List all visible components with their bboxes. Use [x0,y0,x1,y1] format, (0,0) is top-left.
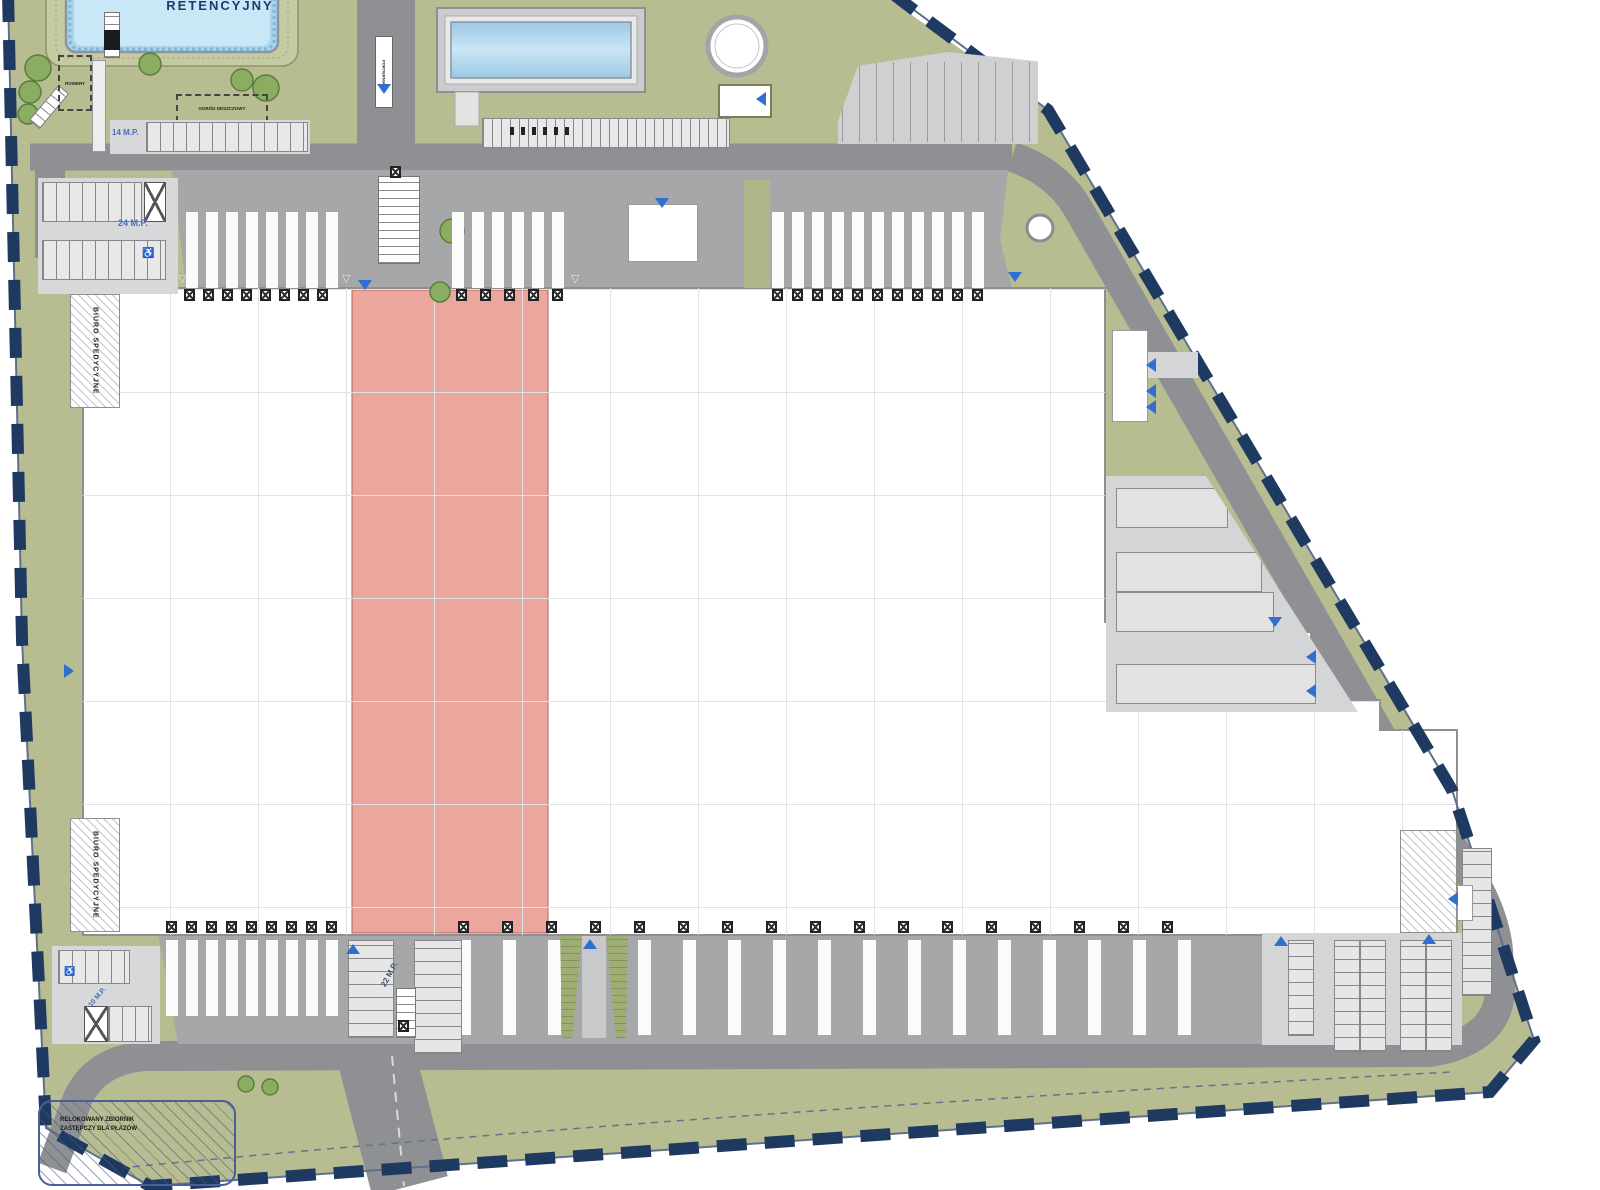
entrance-arrow-icon [655,198,669,208]
parking-column [414,940,462,1054]
dock-door-icon [546,921,557,933]
dock-marker-icon: ▽ [571,274,579,285]
swale-path [582,936,606,1038]
parking-column [1400,940,1426,1052]
reserved-stall [84,1006,108,1042]
dock-door-icon [972,289,983,301]
parking-row [1116,488,1228,528]
dock-door-icon [852,289,863,301]
dock-door-row [458,921,1206,933]
parking-row [146,122,308,152]
gatehouse: PORTIERNIA [375,36,393,108]
disabled-parking-icon: ♿ [64,966,75,977]
dock-door-icon [186,921,197,933]
canopy-structure [628,204,698,262]
entrance-arrow-icon [1306,650,1316,664]
parking-row [1116,664,1316,704]
dock-door-icon [456,289,467,301]
dock-door-icon [678,921,689,933]
dock-door-icon [932,289,943,301]
reserved-stall [144,182,166,222]
entrance-arrow-icon [64,664,74,678]
side-entry-structure [1112,330,1148,422]
dock-door-icon [398,1020,409,1032]
parking-row [42,182,142,222]
parking-row [108,1006,152,1042]
dock-door-icon [226,921,237,933]
pump-house-arrow-icon [756,92,766,106]
entrance-arrow-icon [1146,384,1156,398]
corner-office-area [1400,830,1457,933]
amphibian-label-line2: ZASTĘPCZY DLA PŁAZÓW [60,1125,234,1134]
dock-door-icon [260,289,271,301]
retention-pond-label: RETENCYJNY [150,0,290,13]
dock-door-icon [286,921,297,933]
dock-door-icon [298,289,309,301]
dock-door-icon [892,289,903,301]
dock-door-icon [184,289,195,301]
entrance-arrow-icon [358,280,372,290]
dock-door-icon [832,289,843,301]
gatehouse-label: PORTIERNIA [382,60,387,85]
dock-door-icon [203,289,214,301]
dock-door-icon [772,289,783,301]
entrance-arrow-icon [1008,272,1022,282]
rain-garden-label: OGRÓD DESZCZOWY [199,106,246,111]
forwarding-office-sw: BIURO SPEDYCYJNE [70,818,120,932]
parking-row [1116,592,1274,632]
dock-marker-icon: ▽ [342,274,350,285]
dock-stair-structure [378,176,420,264]
dock-door-icon [502,921,513,933]
dock-door-icon [317,289,328,301]
dock-door-icon [1162,921,1173,933]
dock-door-icon [634,921,645,933]
dock-door-icon [854,921,865,933]
circular-tank [708,17,766,75]
dock-door-icon [872,289,883,301]
dock-door-icon [326,921,337,933]
dock-door-icon [528,289,539,301]
dock-door-icon [898,921,909,933]
dock-door-icon [206,921,217,933]
site-plan: RETENCYJNY OGRÓD DESZCZOWY ROWERY PORTIE… [0,0,1600,1190]
disabled-parking-icon: ♿ [142,248,154,259]
parking-row [42,240,166,280]
parking-column [348,940,394,1038]
dock-door-icon [952,289,963,301]
dock-door-icon [1074,921,1085,933]
dock-door-icon [590,921,601,933]
green-verge [744,180,770,288]
dock-door-icon [241,289,252,301]
parking-row [842,62,1034,142]
dock-door-icon [390,166,401,178]
dock-door-row [456,289,576,301]
dock-door-icon [266,921,277,933]
dock-door-icon [306,921,317,933]
dock-door-icon [812,289,823,301]
dock-door-icon [222,289,233,301]
dock-door-icon [810,921,821,933]
dock-door-icon [1030,921,1041,933]
parking-row [1116,552,1262,592]
bike-shelter: ROWERY [58,55,92,111]
dock-door-row [166,921,346,933]
parking-column [1426,940,1452,1052]
entrance-arrow-icon [1146,400,1156,414]
dock-door-icon [1118,921,1129,933]
parking-14-label: 14 M.P. [112,128,139,137]
parking-column [1334,940,1360,1052]
entrance-arrow-icon [346,944,360,954]
office-label: BIURO SPEDYCYJNE [92,831,99,919]
entrance-arrow-icon [583,939,597,949]
dock-door-icon [942,921,953,933]
amphibian-label-line1: RELOKOWANY ZBIORNIK [60,1116,234,1125]
parking-column [1288,940,1314,1036]
dock-door-icon [766,921,777,933]
truck-dock-stalls [166,940,344,1016]
dock-door-icon [279,289,290,301]
truck-dock-stalls [772,212,992,288]
parking-column [1462,848,1492,996]
dock-door-icon [504,289,515,301]
dock-door-icon [166,921,177,933]
office-label: BIURO SPEDYCYJNE [92,307,99,395]
parking-column [1360,940,1386,1052]
entrance-arrow-icon [377,84,391,94]
truck-parking-ne [838,52,1038,144]
amphibian-reservoir-area: RELOKOWANY ZBIORNIK ZASTĘPCZY DLA PŁAZÓW [38,1100,236,1186]
parking-24-label: 24 M.P. [118,218,148,228]
entrance-arrow-icon [1146,358,1156,372]
dock-door-icon [792,289,803,301]
entrance-arrow-icon [1422,934,1436,944]
truck-dock-stalls [452,212,570,288]
dock-door-icon [722,921,733,933]
entrance-arrow-icon [1268,617,1282,627]
truck-dock-stalls [186,212,342,288]
pond-outlet-structure [104,30,120,50]
dock-door-row [184,289,336,301]
roundabout-structure [1027,215,1053,241]
motorcycle-icons [510,127,570,135]
dock-door-icon [986,921,997,933]
entrance-arrow-icon [1448,892,1458,906]
dock-door-row [772,289,992,301]
dock-door-icon [246,921,257,933]
dock-door-icon [480,289,491,301]
pond-access-path [92,60,106,152]
entrance-arrow-icon [1306,684,1316,698]
bike-shelter-label: ROWERY [65,81,85,86]
dock-door-icon [912,289,923,301]
side-entry-structure [1457,885,1473,921]
dock-door-icon [458,921,469,933]
dock-marker-icon: ▽ [178,274,186,285]
entrance-arrow-icon [1274,936,1288,946]
forwarding-office-nw: BIURO SPEDYCYJNE [70,294,120,408]
rain-garden: OGRÓD DESZCZOWY [176,94,268,122]
dock-door-icon [552,289,563,301]
